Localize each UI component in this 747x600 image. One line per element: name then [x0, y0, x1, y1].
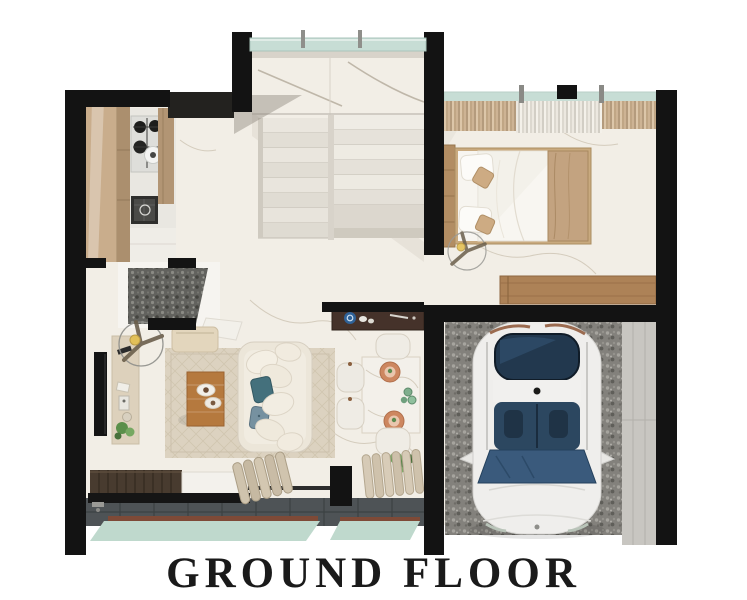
pool-coping — [108, 516, 318, 521]
curtain-white — [516, 101, 602, 133]
car-emblem — [535, 525, 540, 530]
wall-garage-right — [656, 322, 677, 545]
floor-plan-render — [0, 0, 747, 600]
curtain-tan — [444, 101, 516, 131]
wall-sideboard — [322, 302, 424, 312]
wall-bedroom-garage — [424, 305, 677, 322]
garage-concrete-wall — [622, 322, 656, 545]
staircase — [252, 51, 426, 240]
wall-left-outer — [65, 90, 86, 555]
wall-hall-bedroom — [424, 32, 444, 255]
pool-water — [90, 521, 320, 541]
stair-cap — [252, 51, 426, 58]
blue-plate — [344, 312, 356, 324]
curtain-tan — [602, 101, 656, 129]
garage — [445, 321, 656, 545]
stair-divider — [328, 115, 334, 240]
wall-kitchen-top — [65, 90, 170, 107]
sofa — [238, 341, 312, 454]
wall-stair-left-post — [232, 32, 252, 112]
wall-powder-stub-top — [168, 258, 196, 268]
kitchen-wood-panel — [117, 102, 130, 262]
wall-curtain-box — [330, 466, 352, 506]
floor-title: GROUND FLOOR — [0, 550, 747, 598]
kitchen-wood-divider — [158, 108, 174, 204]
car-seat — [504, 410, 523, 438]
bed-throw — [548, 151, 588, 241]
car-antenna — [534, 388, 541, 395]
floor-plan-page: GROUND FLOOR — [0, 0, 747, 600]
stair-flight-right — [334, 115, 426, 238]
wall-bedroom-top-post — [557, 85, 577, 99]
wall-right-outer — [656, 90, 677, 322]
wall-powder-stub-left — [86, 258, 106, 268]
door-handle — [92, 502, 104, 507]
powder-pebble-floor — [128, 268, 208, 324]
car-windshield — [478, 450, 596, 483]
deck-beam — [88, 493, 250, 503]
dining-table — [362, 357, 420, 433]
railing-post — [301, 30, 305, 48]
car — [460, 321, 614, 539]
lounge-bench — [172, 327, 218, 352]
railings — [250, 30, 426, 51]
living-room — [94, 322, 335, 458]
kitchen-dark-counter — [168, 92, 234, 118]
bedroom-bench — [500, 276, 656, 304]
stair-flight-left — [258, 118, 328, 238]
wall-garage-left — [424, 322, 444, 555]
sink — [131, 196, 158, 224]
wall-powder-stub-bottom — [148, 318, 196, 330]
car-seat — [549, 410, 568, 438]
railing-post — [358, 30, 362, 48]
